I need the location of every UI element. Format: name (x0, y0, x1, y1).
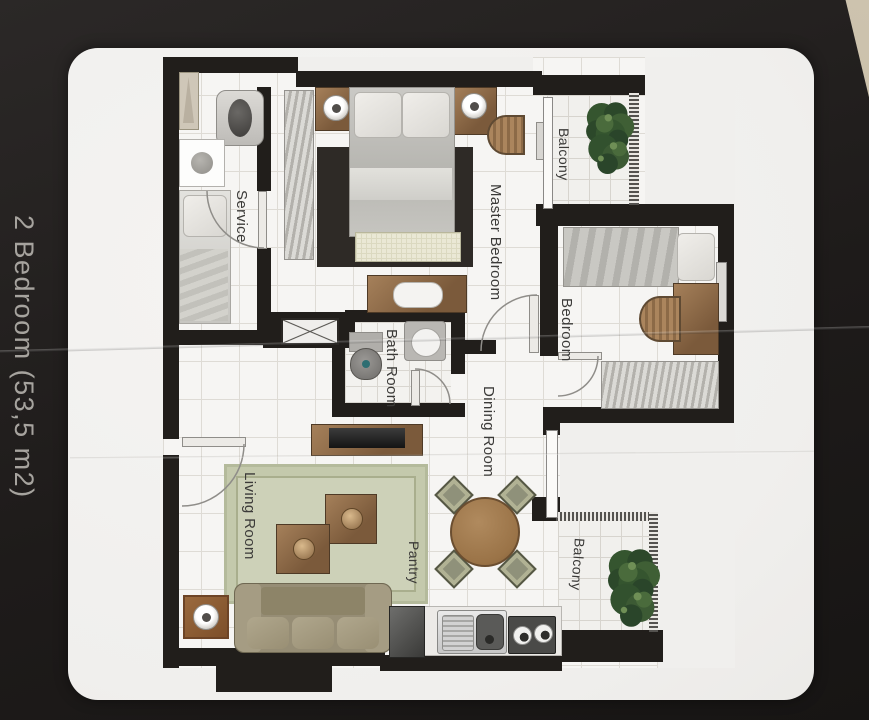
room-label-bedroom: Bedroom (558, 298, 575, 362)
door-arc (558, 356, 598, 396)
door-arc (415, 369, 450, 404)
room-label-dining-room: Dining Room (480, 386, 497, 477)
door-arc (481, 295, 537, 351)
door-arc (182, 444, 244, 506)
floor-plan: Service Master Bedroom Balcony Bedroom B… (0, 0, 869, 720)
room-label-living-room: Living Room (241, 472, 258, 560)
room-label-bath-room: Bath Room (383, 329, 400, 408)
room-label-service: Service (233, 190, 250, 243)
room-label-master-bedroom: Master Bedroom (487, 184, 504, 300)
photo-of-floorplan-brochure: 2 Bedroom (53,5 m2) (0, 0, 869, 720)
room-label-pantry: Pantry (406, 541, 422, 584)
door-swing-arcs (0, 0, 869, 720)
room-label-balcony-top: Balcony (556, 128, 572, 181)
